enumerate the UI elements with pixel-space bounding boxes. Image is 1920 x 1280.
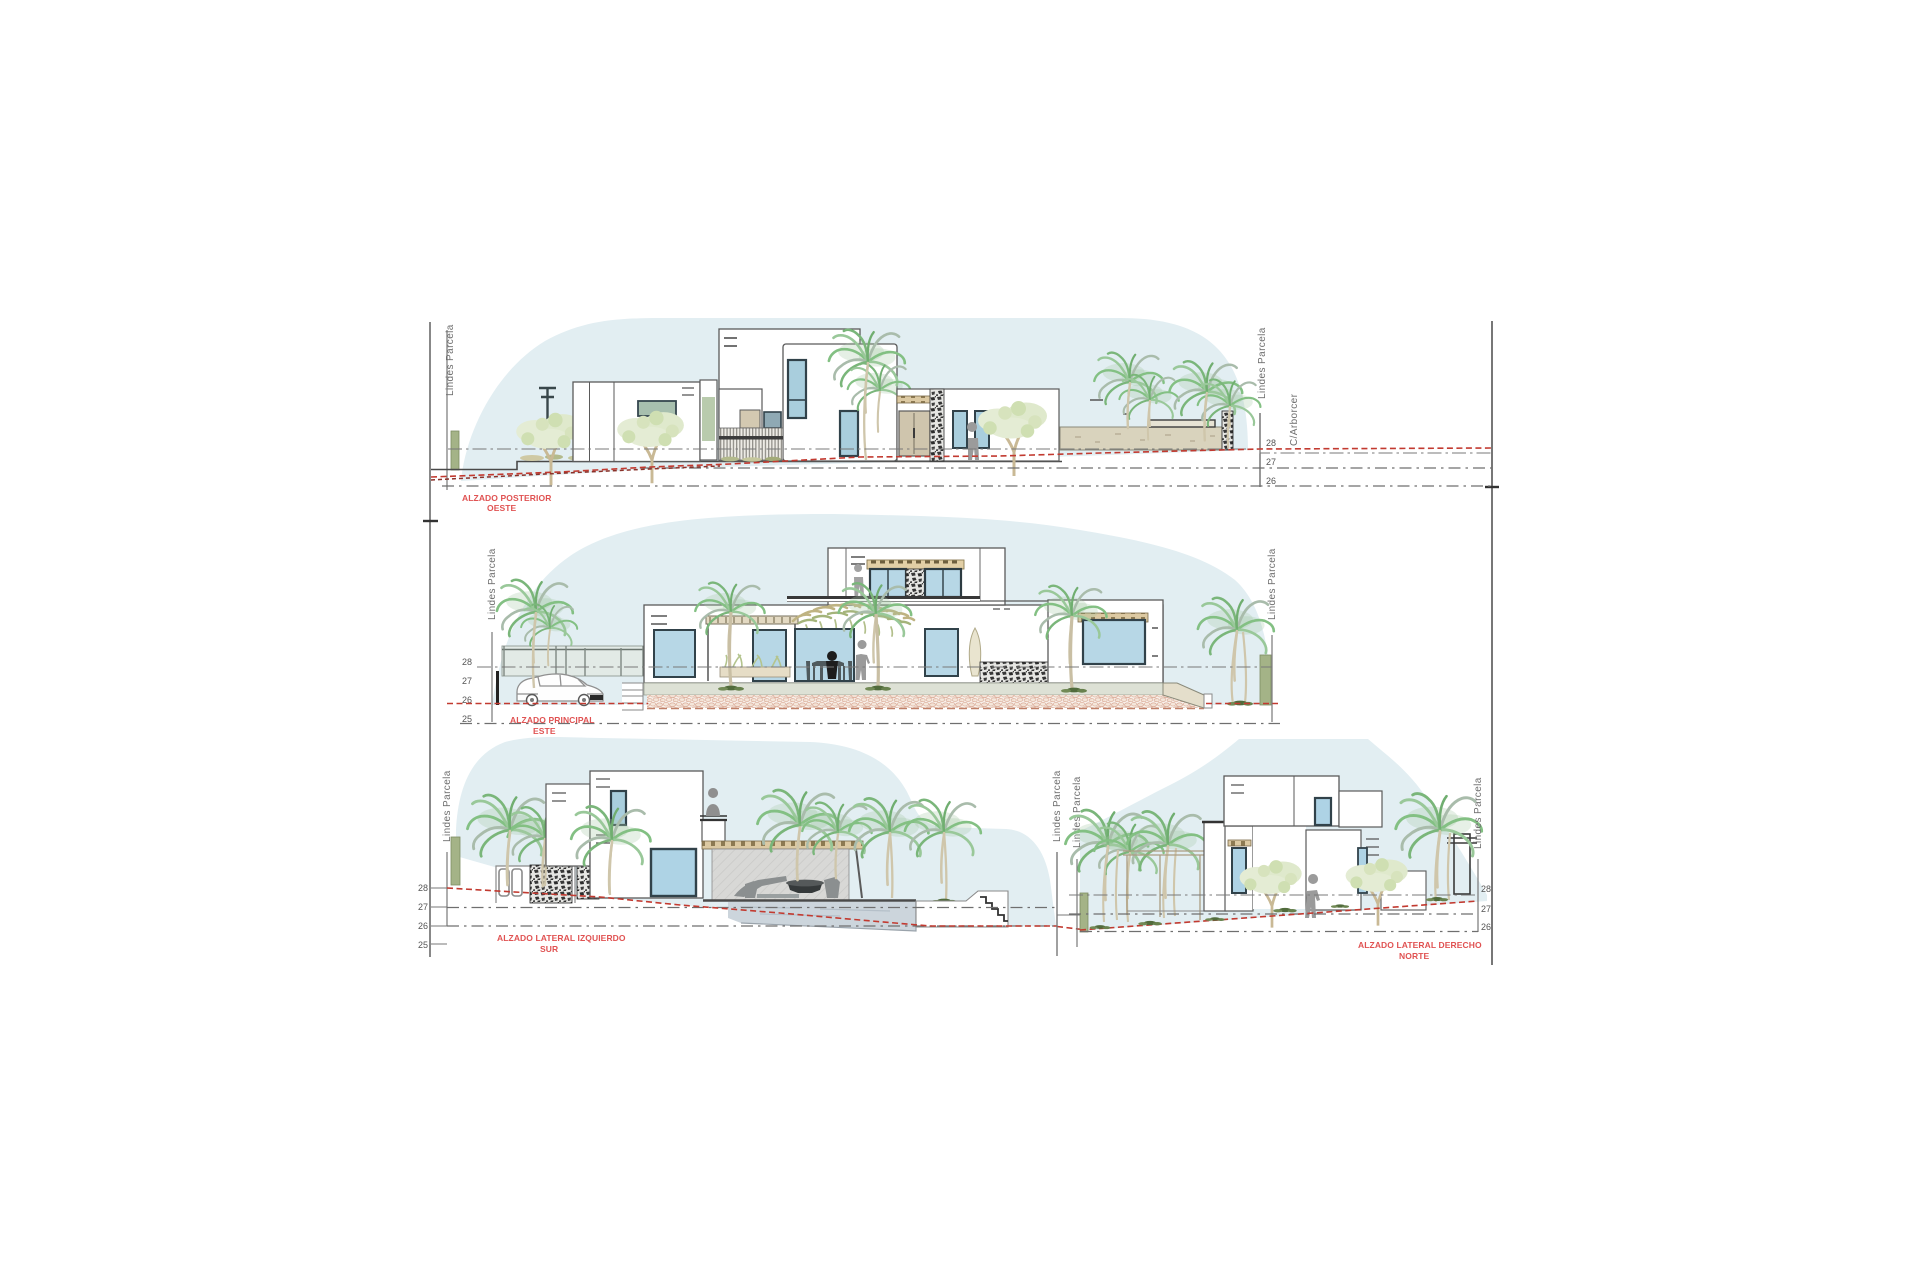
svg-text:ALZADO LATERAL DERECHO: ALZADO LATERAL DERECHO [1358,940,1482,950]
svg-text:Lindes Parcela: Lindes Parcela [1473,777,1484,849]
svg-text:ALZADO LATERAL IZQUIERDO: ALZADO LATERAL IZQUIERDO [497,933,626,943]
svg-text:27: 27 [418,902,428,912]
svg-text:ALZADO POSTERIOR: ALZADO POSTERIOR [462,493,551,503]
svg-text:SUR: SUR [540,944,558,954]
svg-text:25: 25 [462,714,472,724]
svg-text:25: 25 [418,940,428,950]
svg-text:28: 28 [462,657,472,667]
svg-text:Lindes Parcela: Lindes Parcela [1052,770,1063,842]
svg-text:Lindes Parcela: Lindes Parcela [1267,548,1278,620]
svg-text:26: 26 [418,921,428,931]
svg-text:27: 27 [462,676,472,686]
svg-text:28: 28 [1266,438,1276,448]
svg-text:Lindes Parcela: Lindes Parcela [1257,327,1268,399]
svg-text:ESTE: ESTE [533,726,556,736]
svg-text:28: 28 [418,883,428,893]
svg-text:Lindes Parcela: Lindes Parcela [445,324,456,396]
svg-text:27: 27 [1266,457,1276,467]
svg-text:27: 27 [1481,904,1491,914]
svg-text:OESTE: OESTE [487,503,517,513]
svg-text:C/Arborcer: C/Arborcer [1289,393,1300,446]
svg-text:28: 28 [1481,884,1491,894]
svg-text:Lindes Parcela: Lindes Parcela [442,770,453,842]
svg-text:ALZADO PRINCIPAL: ALZADO PRINCIPAL [510,715,595,725]
svg-text:NORTE: NORTE [1399,951,1429,961]
svg-text:26: 26 [1481,922,1491,932]
svg-text:26: 26 [1266,476,1276,486]
